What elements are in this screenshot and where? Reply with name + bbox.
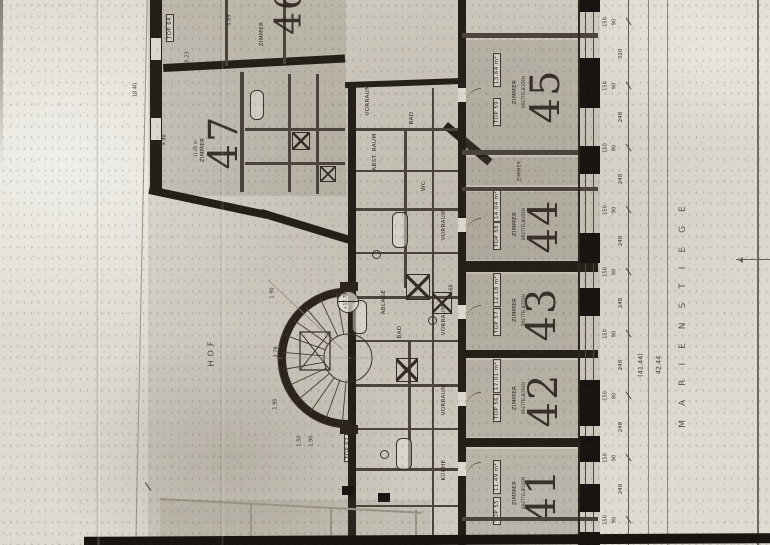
dimension: 5.89	[227, 14, 233, 25]
corridor-label: KÜCHE	[441, 460, 447, 481]
partition	[288, 74, 291, 192]
room-number: 44	[522, 199, 566, 254]
street-facade	[578, 0, 600, 545]
corridor-label: BAD	[397, 326, 403, 339]
window-dim: 150	[603, 515, 609, 525]
partition	[316, 74, 319, 194]
facade-pier	[580, 436, 600, 462]
pier-dim: 90	[612, 83, 618, 89]
pier-dim: 90	[612, 19, 618, 25]
door-opening	[458, 88, 466, 102]
window-dim: 150	[603, 205, 609, 215]
room-number: 43	[520, 287, 564, 342]
pier-dim: 90	[612, 331, 618, 337]
partition	[225, 0, 228, 66]
segment-dim: 248	[618, 298, 624, 309]
corridor-label: VORRAUM	[441, 210, 447, 241]
arrow-mark	[736, 259, 770, 260]
area-label: 12.18 m²	[493, 273, 501, 307]
pier-dim: 90	[612, 517, 618, 523]
solid-block	[342, 486, 354, 495]
facade-pier	[580, 58, 600, 108]
corridor-label: ABLAGE	[381, 290, 387, 315]
sink	[380, 450, 389, 459]
shaft	[396, 358, 418, 382]
area-label: 17.01 m²	[493, 359, 501, 393]
room-number: 45	[524, 69, 568, 124]
corridor-label: VORRAUM	[441, 305, 447, 336]
segment-dim: 248	[618, 484, 624, 495]
top-label: TOP 64	[166, 14, 174, 42]
small-room: ZIMMER	[466, 157, 580, 185]
partition	[404, 128, 407, 288]
dimension: 5.23	[185, 51, 191, 62]
room-number: 41	[520, 468, 564, 523]
elevation-value: +17.73	[345, 293, 350, 310]
top-label: TOP 59	[493, 98, 501, 126]
apartment-44: TOP 58 14.04 m² ZIMMER BRETTELBODEN 44	[466, 192, 580, 260]
window-dim: 150	[603, 267, 609, 277]
zimmer-label: ZIMMER	[512, 298, 518, 323]
area-label: 14.04 m²	[493, 188, 501, 222]
margin-line	[667, 0, 668, 545]
zimmer-label: ZIMMER	[512, 481, 518, 506]
apartment-41: TOP 55 11.49 m² ZIMMER BRETTELBODEN 41	[466, 449, 580, 541]
scanned-floor-plan: TOP 64 ZIMMER 46 ZIMMER 11.85 m² 47 TOP …	[0, 0, 770, 545]
segment-dim: 248	[618, 360, 624, 371]
zimmer-label: ZIMMER	[259, 22, 265, 47]
fold-line	[96, 0, 100, 545]
window-dim: 150	[603, 143, 609, 153]
sheet-edge-line	[757, 0, 759, 545]
room-number-47: 47	[202, 115, 246, 170]
facade-pier	[580, 380, 600, 426]
window-dim: 150	[603, 17, 609, 27]
corridor-label: VORRAUM	[365, 85, 371, 116]
door-opening	[458, 392, 466, 406]
street-label: MARIENSTIEGE	[679, 192, 689, 427]
dimension: 4.68	[449, 284, 455, 295]
apartment-42: TOP 56 17.01 m² ZIMMER BRETTELBODEN 42	[466, 360, 580, 437]
top-label: TOP 56	[493, 394, 501, 422]
segment-dim: 248	[618, 174, 624, 185]
sink	[372, 250, 381, 259]
bathtub	[392, 212, 408, 248]
apartment-43: TOP 57 12.18 m² ZIMMER BRETTELBODEN 43	[466, 274, 580, 350]
pier-dim: 90	[612, 455, 618, 461]
bathtub	[250, 90, 264, 120]
facade-pier	[580, 0, 600, 12]
door-opening	[458, 305, 466, 319]
segment-dim: 248	[618, 422, 624, 433]
facade-pier	[580, 288, 600, 316]
corridor-label: WC	[421, 181, 427, 191]
hof-dimension-line	[135, 0, 147, 545]
window-dim: 150	[603, 391, 609, 401]
room-number: 42	[522, 373, 566, 428]
window-dim: 150	[603, 453, 609, 463]
area-label: 11.85 m²	[194, 139, 198, 157]
window-opening	[151, 38, 161, 60]
margin-line	[648, 0, 649, 545]
apartment-45: TOP 59 13.64 m² ZIMMER BRETTELBODEN 45	[466, 40, 580, 153]
window-dim: 150	[603, 329, 609, 339]
spiral-staircase	[248, 270, 378, 446]
zimmer-label: ZIMMER	[512, 386, 518, 411]
pier-dim: 90	[612, 207, 618, 213]
area-label: 11.49 m²	[493, 460, 501, 494]
zimmer-label: ZIMMER	[512, 212, 518, 237]
window-dim: 150	[603, 81, 609, 91]
partition	[245, 128, 345, 131]
pier-dim: 90	[612, 145, 618, 151]
shaft	[320, 166, 336, 182]
segment-dim: 320	[618, 49, 624, 60]
wall	[150, 0, 162, 192]
sink	[428, 316, 437, 325]
corridor-label: VORRAUM	[441, 385, 447, 416]
partition	[356, 128, 458, 131]
top-label: TOP 58	[493, 222, 501, 250]
shaft	[406, 274, 430, 300]
pier-dim: 90	[612, 269, 618, 275]
facade-pier	[580, 146, 600, 174]
segment-dim: 248	[618, 112, 624, 123]
zimmer-label: ZIMMER	[519, 161, 524, 182]
courtyard-label: HOF	[208, 338, 217, 367]
shaft	[292, 132, 310, 150]
facade-pier	[580, 233, 600, 263]
segment-dim: 248	[618, 236, 624, 247]
zimmer-label: ZIMMER	[512, 80, 518, 105]
facade-pier	[580, 484, 600, 512]
partition	[245, 162, 345, 165]
room-number-46: 46	[270, 0, 310, 35]
corridor-label: BAD	[409, 112, 415, 125]
door-opening	[458, 462, 466, 476]
door-opening	[458, 218, 466, 232]
top-label: TOP 57	[493, 308, 501, 336]
total-dim: (41.44)	[637, 353, 644, 377]
scan-edge-left	[0, 0, 3, 170]
dimension: 18.40	[133, 83, 139, 97]
area-label: 13.64 m²	[493, 53, 501, 87]
corridor-label: ABST. RAUM	[372, 133, 378, 170]
bathtub	[396, 438, 412, 470]
window-opening	[151, 118, 161, 140]
total-dim: 42.44	[655, 356, 662, 375]
dimension: 9.98	[162, 134, 168, 145]
pier-dim: 90	[612, 393, 618, 399]
